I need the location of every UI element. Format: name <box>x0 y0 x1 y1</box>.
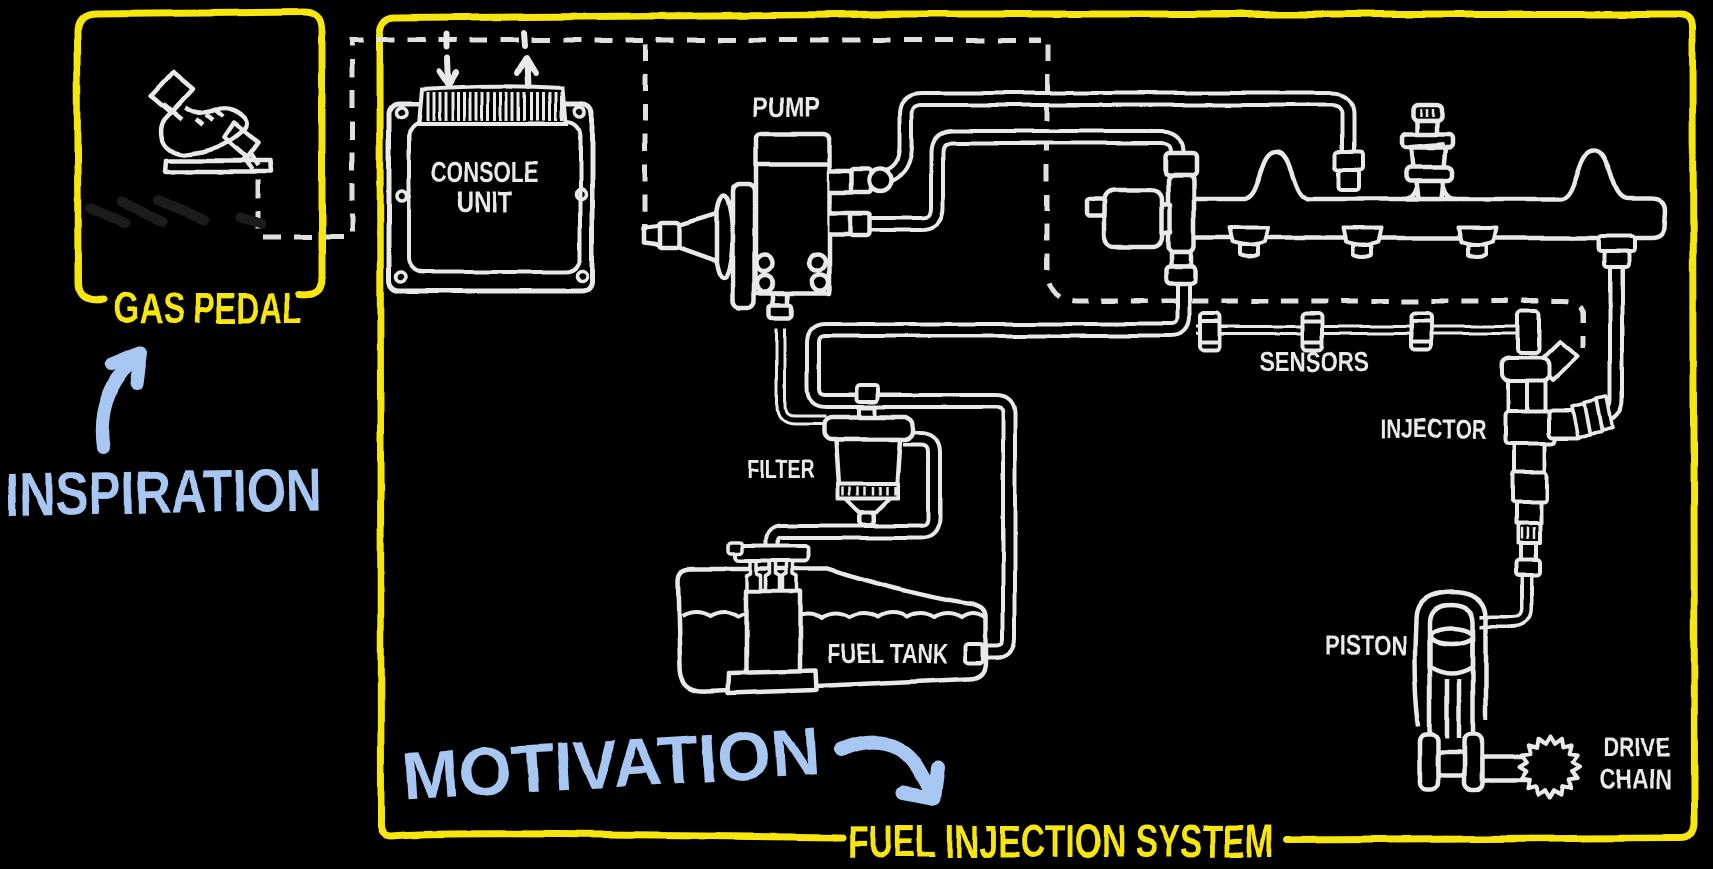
svg-text:FUEL INJECTION SYSTEM: FUEL INJECTION SYSTEM <box>848 815 1274 867</box>
svg-text:UNIT: UNIT <box>457 186 512 219</box>
svg-text:CONSOLE: CONSOLE <box>431 156 538 189</box>
svg-text:PISTON: PISTON <box>1325 630 1407 661</box>
svg-text:FUEL TANK: FUEL TANK <box>828 638 948 669</box>
svg-text:FILTER: FILTER <box>747 454 815 484</box>
svg-text:PUMP: PUMP <box>752 92 820 123</box>
svg-text:DRIVE: DRIVE <box>1604 732 1670 763</box>
svg-text:SENSORS: SENSORS <box>1259 346 1369 377</box>
svg-text:CHAIN: CHAIN <box>1600 764 1672 795</box>
svg-text:INJECTOR: INJECTOR <box>1381 413 1486 444</box>
svg-text:INSPIRATION: INSPIRATION <box>5 455 322 529</box>
svg-text:GAS PEDAL: GAS PEDAL <box>114 284 302 333</box>
